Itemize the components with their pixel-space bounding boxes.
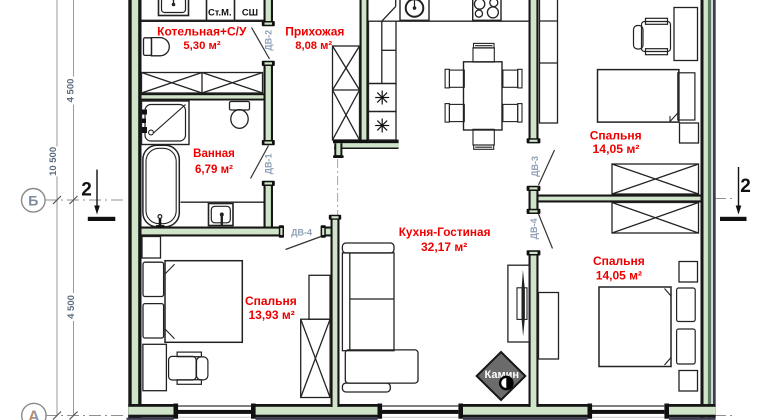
svg-text:Котельная+С/У: Котельная+С/У bbox=[157, 25, 247, 39]
svg-text:2: 2 bbox=[740, 176, 751, 197]
svg-text:10 500: 10 500 bbox=[48, 147, 59, 176]
svg-text:4 500: 4 500 bbox=[65, 79, 76, 103]
svg-text:14,05 м²: 14,05 м² bbox=[593, 142, 640, 156]
svg-text:Кухня-Гостиная: Кухня-Гостиная bbox=[399, 225, 491, 239]
svg-text:Ванная: Ванная bbox=[193, 148, 235, 160]
svg-text:14,05 м²: 14,05 м² bbox=[596, 268, 642, 282]
svg-text:8,08 м²: 8,08 м² bbox=[295, 40, 332, 52]
svg-text:5,30 м²: 5,30 м² bbox=[183, 40, 220, 52]
svg-text:13,93 м²: 13,93 м² bbox=[248, 308, 294, 322]
svg-text:Прихожая: Прихожая bbox=[285, 25, 344, 39]
svg-text:Б: Б bbox=[28, 192, 38, 208]
svg-text:ДВ-3: ДВ-3 bbox=[530, 156, 540, 177]
svg-text:ДВ-4: ДВ-4 bbox=[529, 218, 539, 239]
svg-text:2: 2 bbox=[81, 180, 92, 201]
svg-text:СШ: СШ bbox=[242, 7, 258, 18]
svg-text:А: А bbox=[28, 409, 40, 420]
svg-text:6,79 м²: 6,79 м² bbox=[195, 164, 233, 176]
svg-text:Спальня: Спальня bbox=[245, 294, 297, 308]
svg-text:Ст.М.: Ст.М. bbox=[208, 7, 232, 18]
svg-text:ДВ-2: ДВ-2 bbox=[263, 30, 273, 51]
svg-text:Спальня: Спальня bbox=[593, 254, 645, 268]
svg-text:32,17 м²: 32,17 м² bbox=[421, 240, 467, 254]
svg-text:Спальня: Спальня bbox=[590, 129, 642, 143]
svg-text:ДВ-4: ДВ-4 bbox=[291, 228, 312, 238]
svg-text:4 500: 4 500 bbox=[66, 295, 77, 319]
svg-text:ДВ-1: ДВ-1 bbox=[264, 153, 274, 174]
